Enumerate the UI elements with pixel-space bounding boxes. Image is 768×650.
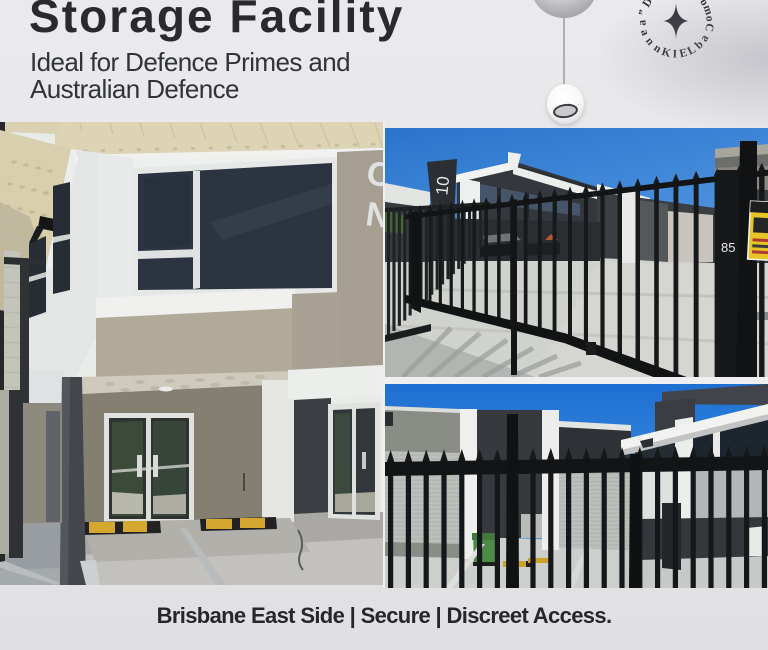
svg-text:10: 10 <box>432 175 453 196</box>
svg-text:85: 85 <box>721 240 735 255</box>
